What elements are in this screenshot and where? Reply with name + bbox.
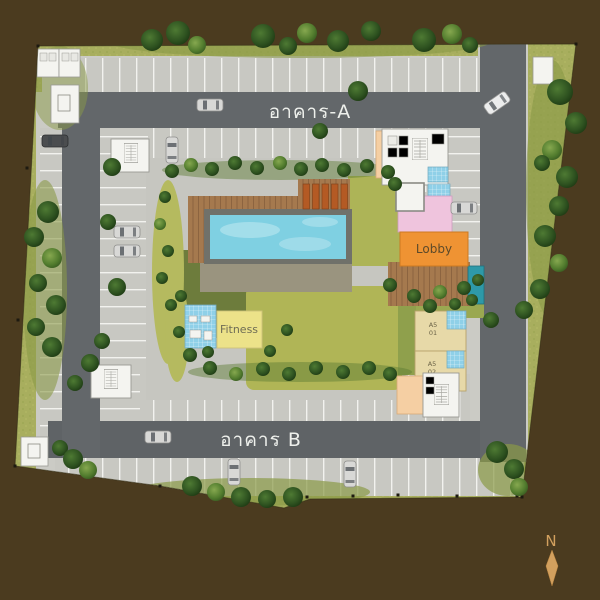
survey-marker (456, 495, 459, 498)
tree-icon (550, 254, 568, 272)
car-icon (228, 459, 240, 485)
tree-icon (67, 375, 83, 391)
tree-icon (442, 24, 462, 44)
pool-ripple (279, 237, 331, 251)
tree-icon (486, 441, 508, 463)
tree-icon (156, 272, 168, 284)
survey-marker (397, 494, 400, 497)
compass-north-label: N (545, 532, 556, 550)
tree-icon (472, 274, 484, 286)
survey-marker (14, 465, 17, 468)
tree-icon (46, 295, 66, 315)
tree-icon (79, 461, 97, 479)
tree-icon (184, 158, 198, 172)
tree-icon (361, 21, 381, 41)
car-icon (344, 461, 356, 487)
unit1-label-line2: 01 (429, 329, 437, 337)
tree-icon (182, 476, 202, 496)
pool-ripple (302, 217, 338, 227)
tree-icon (228, 156, 242, 170)
tree-icon (549, 196, 569, 216)
core-room (432, 134, 444, 144)
tree-icon (256, 362, 270, 376)
pool-ripple (220, 222, 280, 238)
tree-icon (294, 162, 308, 176)
tree-icon (383, 278, 397, 292)
tree-icon (279, 37, 297, 55)
tree-icon (282, 367, 296, 381)
core-room (426, 387, 434, 394)
tree-icon (202, 346, 214, 358)
tree-icon (336, 365, 350, 379)
tree-icon (457, 281, 471, 295)
grass-patch (188, 362, 412, 382)
tree-icon (100, 214, 116, 230)
tree-icon (383, 367, 397, 381)
lobby-label: Lobby (416, 242, 452, 256)
tree-icon (327, 30, 349, 52)
car-icon (42, 135, 68, 147)
stairs-icon (434, 384, 449, 405)
tree-icon (29, 274, 47, 292)
tree-icon (483, 312, 499, 328)
tree-icon (348, 81, 368, 101)
tree-icon (534, 225, 556, 247)
tree-icon (449, 298, 461, 310)
tree-icon (381, 165, 395, 179)
tree-icon (103, 158, 121, 176)
core-room (426, 377, 434, 384)
tree-icon (250, 161, 264, 175)
stairs-icon (104, 369, 118, 388)
car-icon (145, 431, 171, 443)
tree-icon (388, 177, 402, 191)
site-plan-svg: Lobby A5 01 A5 02 Fitness (0, 0, 600, 600)
tree-icon (205, 162, 219, 176)
survey-marker (17, 319, 20, 322)
room-peach-b (397, 376, 423, 414)
tree-icon (462, 37, 478, 53)
fixture (201, 316, 210, 322)
bath-tiles (428, 167, 448, 182)
tree-icon (264, 345, 276, 357)
tree-icon (162, 245, 174, 257)
tree-icon (229, 367, 243, 381)
tree-icon (407, 289, 421, 303)
tree-icon (283, 487, 303, 507)
tree-icon (207, 483, 225, 501)
survey-marker (37, 45, 40, 48)
tree-icon (183, 348, 197, 362)
survey-marker (159, 485, 162, 488)
unit2-label-line1: A5 (428, 360, 437, 368)
tree-icon (159, 191, 171, 203)
tree-icon (362, 361, 376, 375)
car-icon (114, 245, 140, 257)
tree-icon (165, 164, 179, 178)
road-left (62, 92, 100, 458)
tree-icon (231, 487, 251, 507)
tree-icon (258, 490, 276, 508)
tree-icon (312, 123, 328, 139)
lawn-units-west (398, 295, 416, 375)
fitness-label: Fitness (220, 323, 258, 336)
tree-icon (423, 299, 437, 313)
tree-icon (534, 155, 550, 171)
tree-icon (42, 248, 62, 268)
car-icon (451, 202, 477, 214)
tree-icon (37, 201, 59, 223)
tree-icon (281, 324, 293, 336)
tree-icon (42, 337, 62, 357)
tree-icon (315, 158, 329, 172)
unit1-label-line1: A5 (429, 321, 438, 329)
tree-icon (273, 156, 287, 170)
tree-icon (166, 21, 190, 45)
tree-icon (504, 459, 524, 479)
bath-tiles (447, 351, 464, 368)
tree-icon (510, 478, 528, 496)
fixture (189, 316, 197, 322)
tree-icon (173, 326, 185, 338)
tree-icon (556, 166, 578, 188)
tree-icon (433, 285, 447, 299)
tree-icon (251, 24, 275, 48)
tree-icon (466, 294, 478, 306)
tree-icon (547, 79, 573, 105)
survey-marker (575, 43, 578, 46)
building-b-label: อาคาร B (220, 429, 302, 451)
fixture (204, 331, 212, 340)
site-plan-image: Lobby A5 01 A5 02 Fitness (0, 0, 600, 600)
tree-icon (154, 218, 166, 230)
building-a-label: อาคาร-A (269, 101, 352, 123)
tree-icon (412, 28, 436, 52)
bath-tiles (447, 311, 466, 329)
tree-icon (565, 112, 587, 134)
fixture (190, 330, 201, 338)
survey-marker (306, 496, 309, 499)
tree-icon (141, 29, 163, 51)
tree-icon (27, 318, 45, 336)
survey-marker (352, 495, 355, 498)
tree-icon (94, 333, 110, 349)
tree-icon (203, 361, 217, 375)
car-icon (166, 137, 178, 163)
changing-room (185, 305, 216, 348)
tree-icon (530, 279, 550, 299)
tree-icon (337, 163, 351, 177)
tree-icon (165, 299, 177, 311)
survey-marker (26, 167, 29, 170)
fitness-area: Fitness (185, 305, 262, 348)
tree-icon (108, 278, 126, 296)
tree-icon (188, 36, 206, 54)
tree-icon (175, 290, 187, 302)
stairs-icon (412, 138, 428, 160)
tree-icon (309, 361, 323, 375)
tree-icon (24, 227, 44, 247)
car-icon (197, 99, 223, 111)
tree-icon (81, 354, 99, 372)
stairs-icon (124, 143, 138, 162)
car-icon (114, 226, 140, 238)
tree-icon (297, 23, 317, 43)
survey-marker (521, 496, 524, 499)
sun-loungers (303, 184, 348, 209)
tree-icon (360, 159, 374, 173)
tree-icon (515, 301, 533, 319)
